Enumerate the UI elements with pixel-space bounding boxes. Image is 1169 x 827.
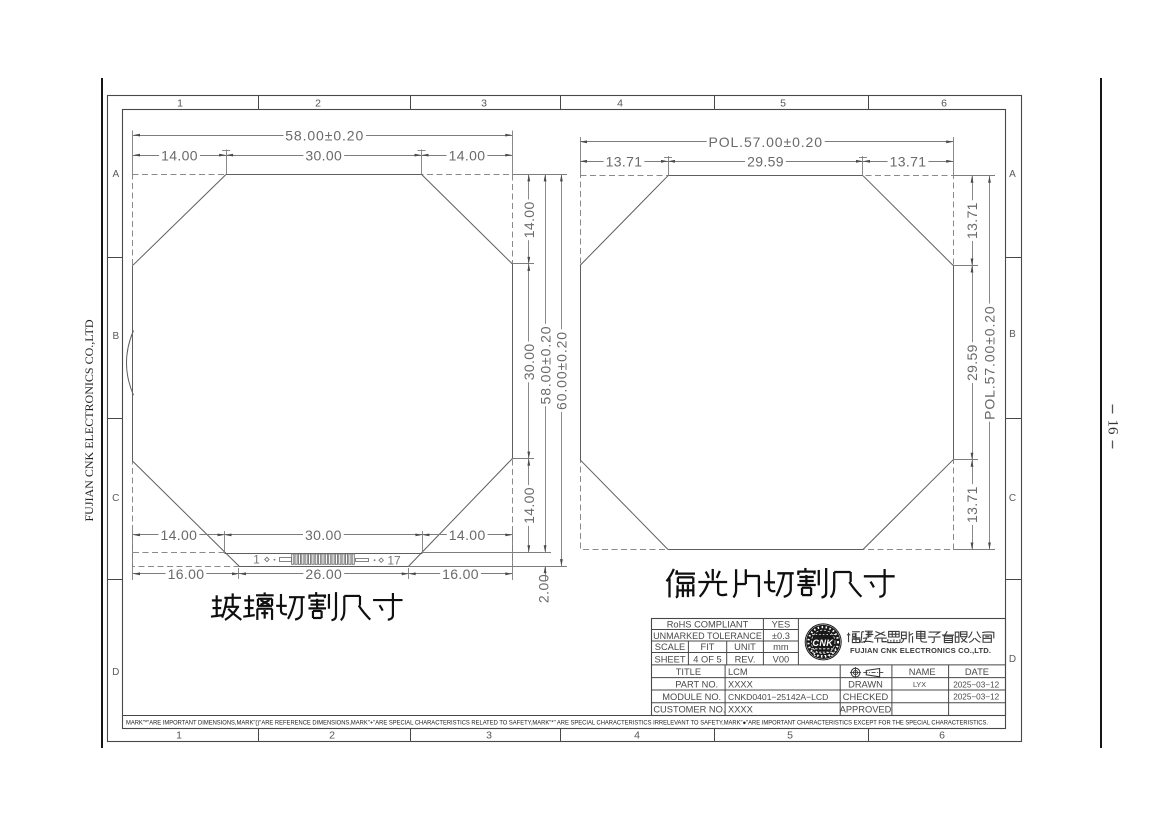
svg-text:58.00±0.20: 58.00±0.20 [285,127,364,143]
svg-text:±0.3: ±0.3 [772,631,790,641]
svg-text:2025−03−12: 2025−03−12 [953,692,999,701]
svg-text:14.00: 14.00 [161,527,198,543]
svg-text:6: 6 [941,98,947,110]
svg-text:XXXX: XXXX [728,680,753,690]
svg-text:13.71: 13.71 [890,154,927,170]
svg-text:14.00: 14.00 [449,527,486,543]
svg-text:29.59: 29.59 [747,154,784,170]
svg-text:LCM: LCM [728,667,748,677]
svg-text:FIT: FIT [701,642,715,652]
svg-text:CHECKED: CHECKED [843,692,889,702]
svg-text:REV.: REV. [735,654,756,664]
svg-text:16.00: 16.00 [442,566,479,582]
svg-text:13.71: 13.71 [606,154,643,170]
svg-text:DRAWN: DRAWN [848,680,883,690]
svg-text:2025−03−12: 2025−03−12 [953,680,999,689]
svg-text:LYX: LYX [913,680,926,689]
svg-text:3: 3 [481,98,487,110]
svg-text:14.00: 14.00 [449,147,486,163]
svg-text:C: C [112,493,119,504]
svg-text:2: 2 [329,730,335,742]
svg-text:16: 16 [1105,420,1121,436]
svg-text:MARK"*"ARE IMPORTANT DIMENSION: MARK"*"ARE IMPORTANT DIMENSIONS,MARK"()"… [126,719,988,726]
svg-text:17: 17 [387,554,401,568]
svg-text:1: 1 [176,730,182,742]
svg-text:2: 2 [315,98,321,110]
svg-text:MODULE NO.: MODULE NO. [662,692,721,702]
svg-text:UNIT: UNIT [734,642,756,652]
svg-text:D: D [1009,654,1016,665]
svg-text:C: C [1009,493,1016,504]
svg-text:14.00: 14.00 [521,201,537,238]
svg-text:29.59: 29.59 [964,344,980,381]
svg-text:APPROVED: APPROVED [840,704,892,714]
svg-text:FUJIAN CNK ELECTRONICS CO.,LTD: FUJIAN CNK ELECTRONICS CO.,LTD. [850,646,991,655]
svg-text:4: 4 [634,730,640,742]
svg-text:A: A [1009,169,1016,180]
svg-text:30.00: 30.00 [305,527,342,543]
svg-text:POL.57.00±0.20: POL.57.00±0.20 [982,305,998,419]
svg-text:13.71: 13.71 [964,486,980,523]
svg-text:POL.57.00±0.20: POL.57.00±0.20 [708,134,822,150]
svg-text:3: 3 [486,730,492,742]
svg-text:YES: YES [772,620,791,630]
svg-text:16.00: 16.00 [168,566,205,582]
svg-text:CUSTOMER NO.: CUSTOMER NO. [653,704,725,714]
svg-text:6: 6 [939,730,945,742]
svg-text:14.00: 14.00 [161,147,198,163]
svg-text:30.00: 30.00 [305,147,342,163]
svg-text:PART NO.: PART NO. [675,680,718,690]
svg-text:5: 5 [780,98,786,110]
svg-text:mm: mm [773,642,789,652]
svg-text:14.00: 14.00 [521,487,537,524]
svg-text:NAME: NAME [909,667,936,677]
svg-text:CNKD0401−25142A−LCD: CNKD0401−25142A−LCD [728,692,828,702]
svg-text:2.00: 2.00 [536,574,552,603]
svg-text:SCALE: SCALE [655,642,686,652]
svg-text:SHEET: SHEET [655,654,686,664]
svg-text:4 OF 5: 4 OF 5 [693,654,721,664]
svg-text:XXXX: XXXX [728,704,753,714]
svg-text:1: 1 [253,553,260,567]
svg-text:UNMARKED TOLERANCE: UNMARKED TOLERANCE [653,631,762,641]
svg-text:TITLE: TITLE [676,667,701,677]
svg-text:5: 5 [787,730,793,742]
svg-text:FUJIAN CNK ELECTRONICS CO.,LTD: FUJIAN CNK ELECTRONICS CO.,LTD [82,319,96,521]
svg-text:30.00: 30.00 [521,344,537,381]
svg-text:13.71: 13.71 [964,202,980,239]
svg-text:B: B [1009,329,1016,340]
svg-text:58.00±0.20: 58.00±0.20 [537,326,553,405]
svg-text:RoHS COMPLIANT: RoHS COMPLIANT [667,620,749,630]
svg-text:CNK: CNK [812,638,834,648]
svg-text:A: A [112,169,119,180]
svg-text:26.00: 26.00 [305,566,342,582]
svg-text:V00: V00 [773,654,790,664]
svg-text:4: 4 [617,98,623,110]
svg-text:B: B [112,331,119,342]
svg-text:60.00±0.20: 60.00±0.20 [554,331,570,410]
svg-text:D: D [112,667,119,678]
svg-text:1: 1 [177,98,183,110]
svg-text:DATE: DATE [965,667,989,677]
